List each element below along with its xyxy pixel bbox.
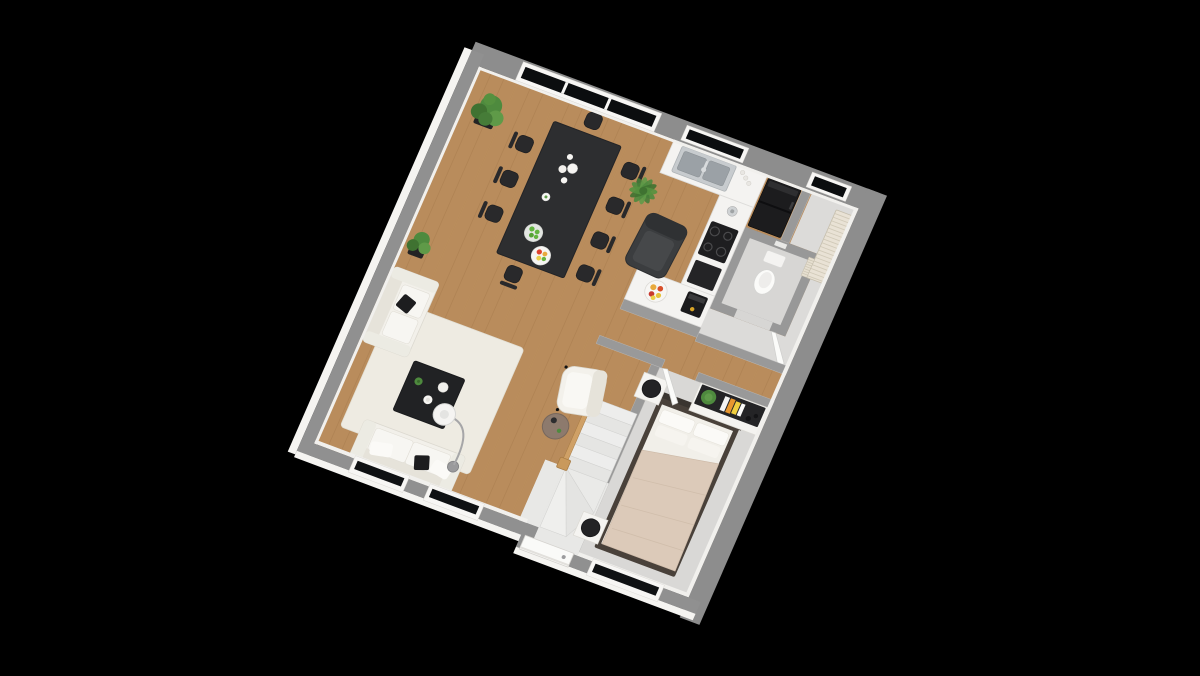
floor-plan-group xyxy=(281,39,887,625)
floor-plan-stage: 3D isometric floor plan render of a one-… xyxy=(0,0,1200,676)
armchair-white xyxy=(555,365,608,418)
floor-plan-3d-render xyxy=(0,0,1200,676)
black-pillow xyxy=(414,455,430,470)
